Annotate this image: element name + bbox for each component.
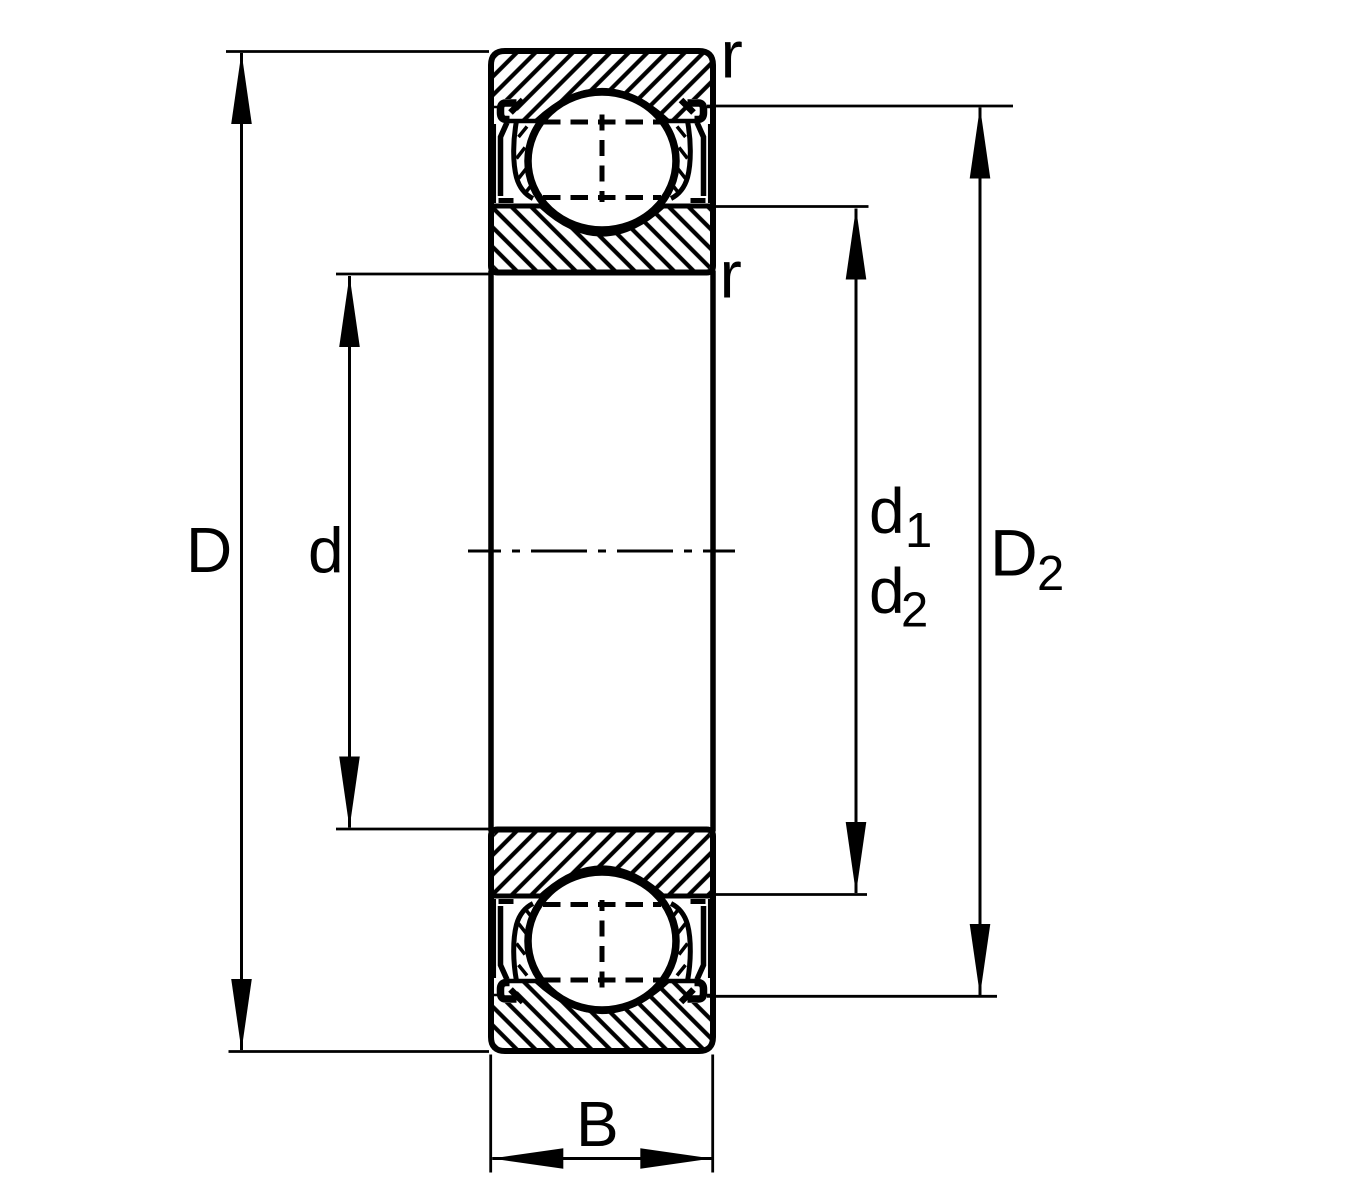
svg-text:B: B <box>576 1088 619 1160</box>
svg-text:r: r <box>720 238 742 313</box>
svg-text:2: 2 <box>1037 547 1064 601</box>
svg-text:2: 2 <box>901 584 928 638</box>
svg-text:d: d <box>308 515 344 587</box>
svg-text:D: D <box>186 514 232 586</box>
svg-text:d: d <box>869 555 905 627</box>
svg-text:r: r <box>721 18 743 93</box>
svg-text:d: d <box>869 475 905 547</box>
svg-text:D: D <box>990 516 1038 590</box>
svg-text:1: 1 <box>905 504 932 558</box>
